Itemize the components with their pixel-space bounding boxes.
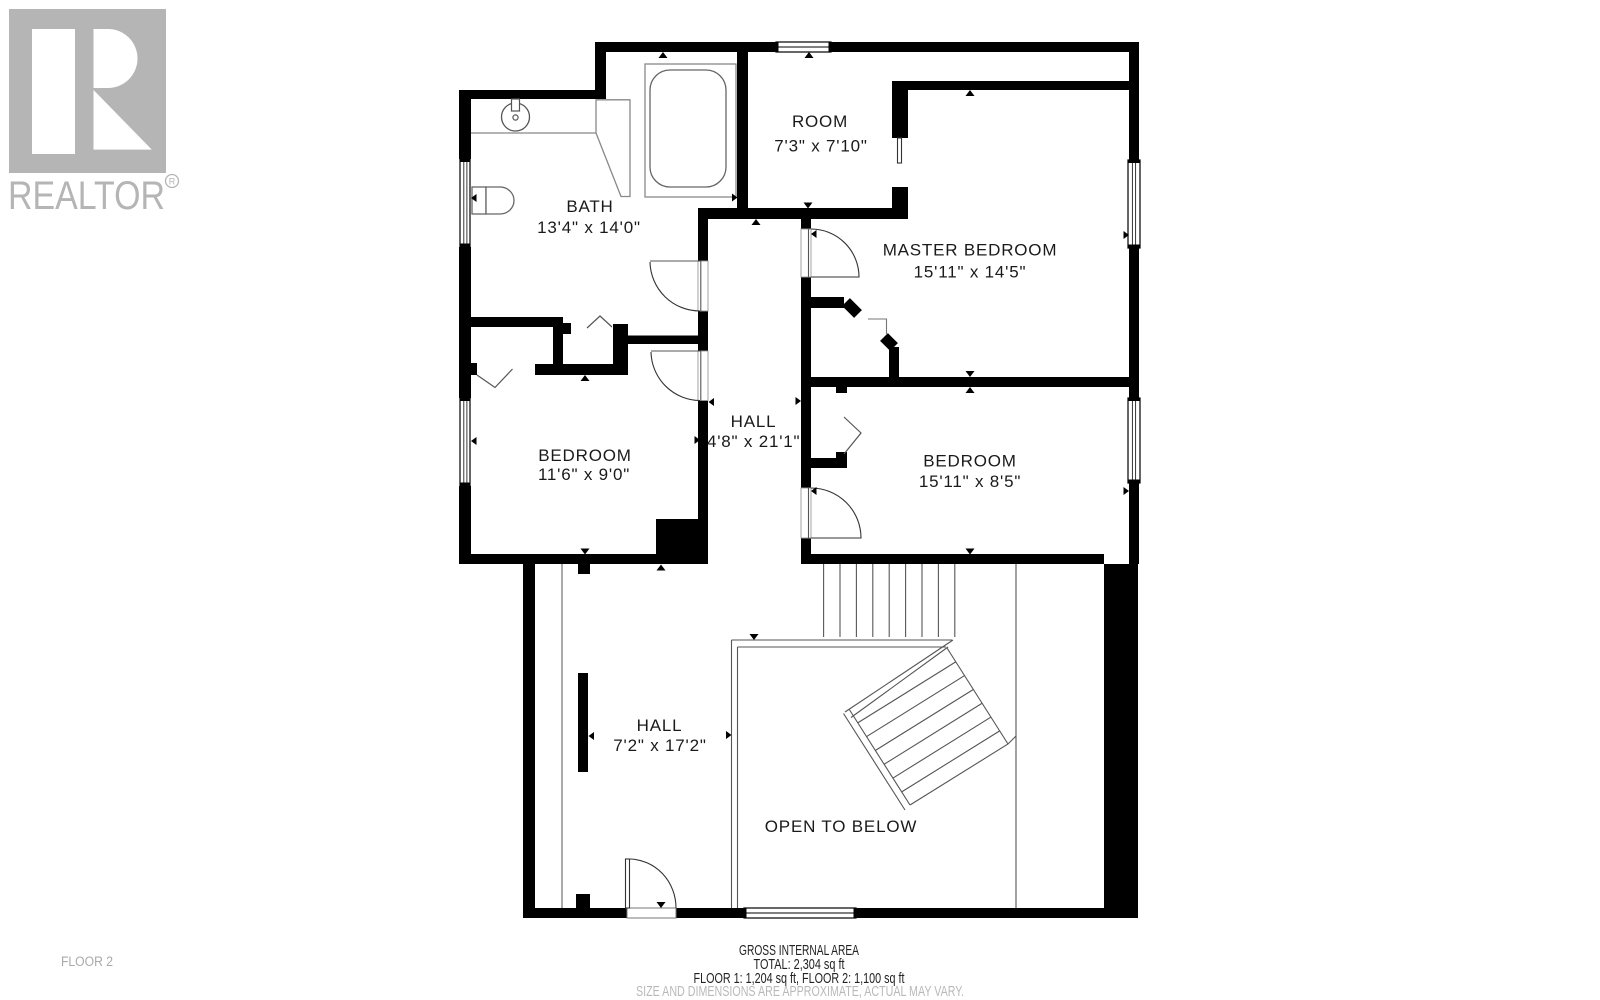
svg-text:OPEN TO BELOW: OPEN TO BELOW	[765, 817, 917, 836]
svg-text:7'2" x 17'2": 7'2" x 17'2"	[613, 736, 706, 755]
svg-text:13'4" x 14'0": 13'4" x 14'0"	[537, 218, 641, 237]
svg-text:FLOOR 2: FLOOR 2	[61, 954, 113, 969]
svg-text:7'3" x 7'10": 7'3" x 7'10"	[774, 137, 867, 156]
svg-text:HALL: HALL	[637, 716, 683, 735]
svg-text:15'11" x 14'5": 15'11" x 14'5"	[914, 263, 1027, 282]
svg-text:MASTER BEDROOM: MASTER BEDROOM	[883, 241, 1058, 260]
svg-text:SIZE AND DIMENSIONS ARE APPROX: SIZE AND DIMENSIONS ARE APPROXIMATE, ACT…	[636, 984, 964, 1000]
svg-text:BEDROOM: BEDROOM	[538, 446, 631, 465]
svg-text:11'6" x 9'0": 11'6" x 9'0"	[538, 465, 630, 484]
svg-text:REALTOR: REALTOR	[8, 174, 165, 218]
svg-text:15'11" x 8'5": 15'11" x 8'5"	[919, 472, 1021, 491]
svg-text:BATH: BATH	[566, 197, 613, 216]
svg-text:BEDROOM: BEDROOM	[923, 452, 1016, 471]
svg-text:ROOM: ROOM	[792, 112, 848, 131]
svg-text:R: R	[169, 177, 176, 187]
svg-text:4'8" x 21'1": 4'8" x 21'1"	[707, 432, 800, 451]
svg-text:HALL: HALL	[731, 412, 777, 431]
